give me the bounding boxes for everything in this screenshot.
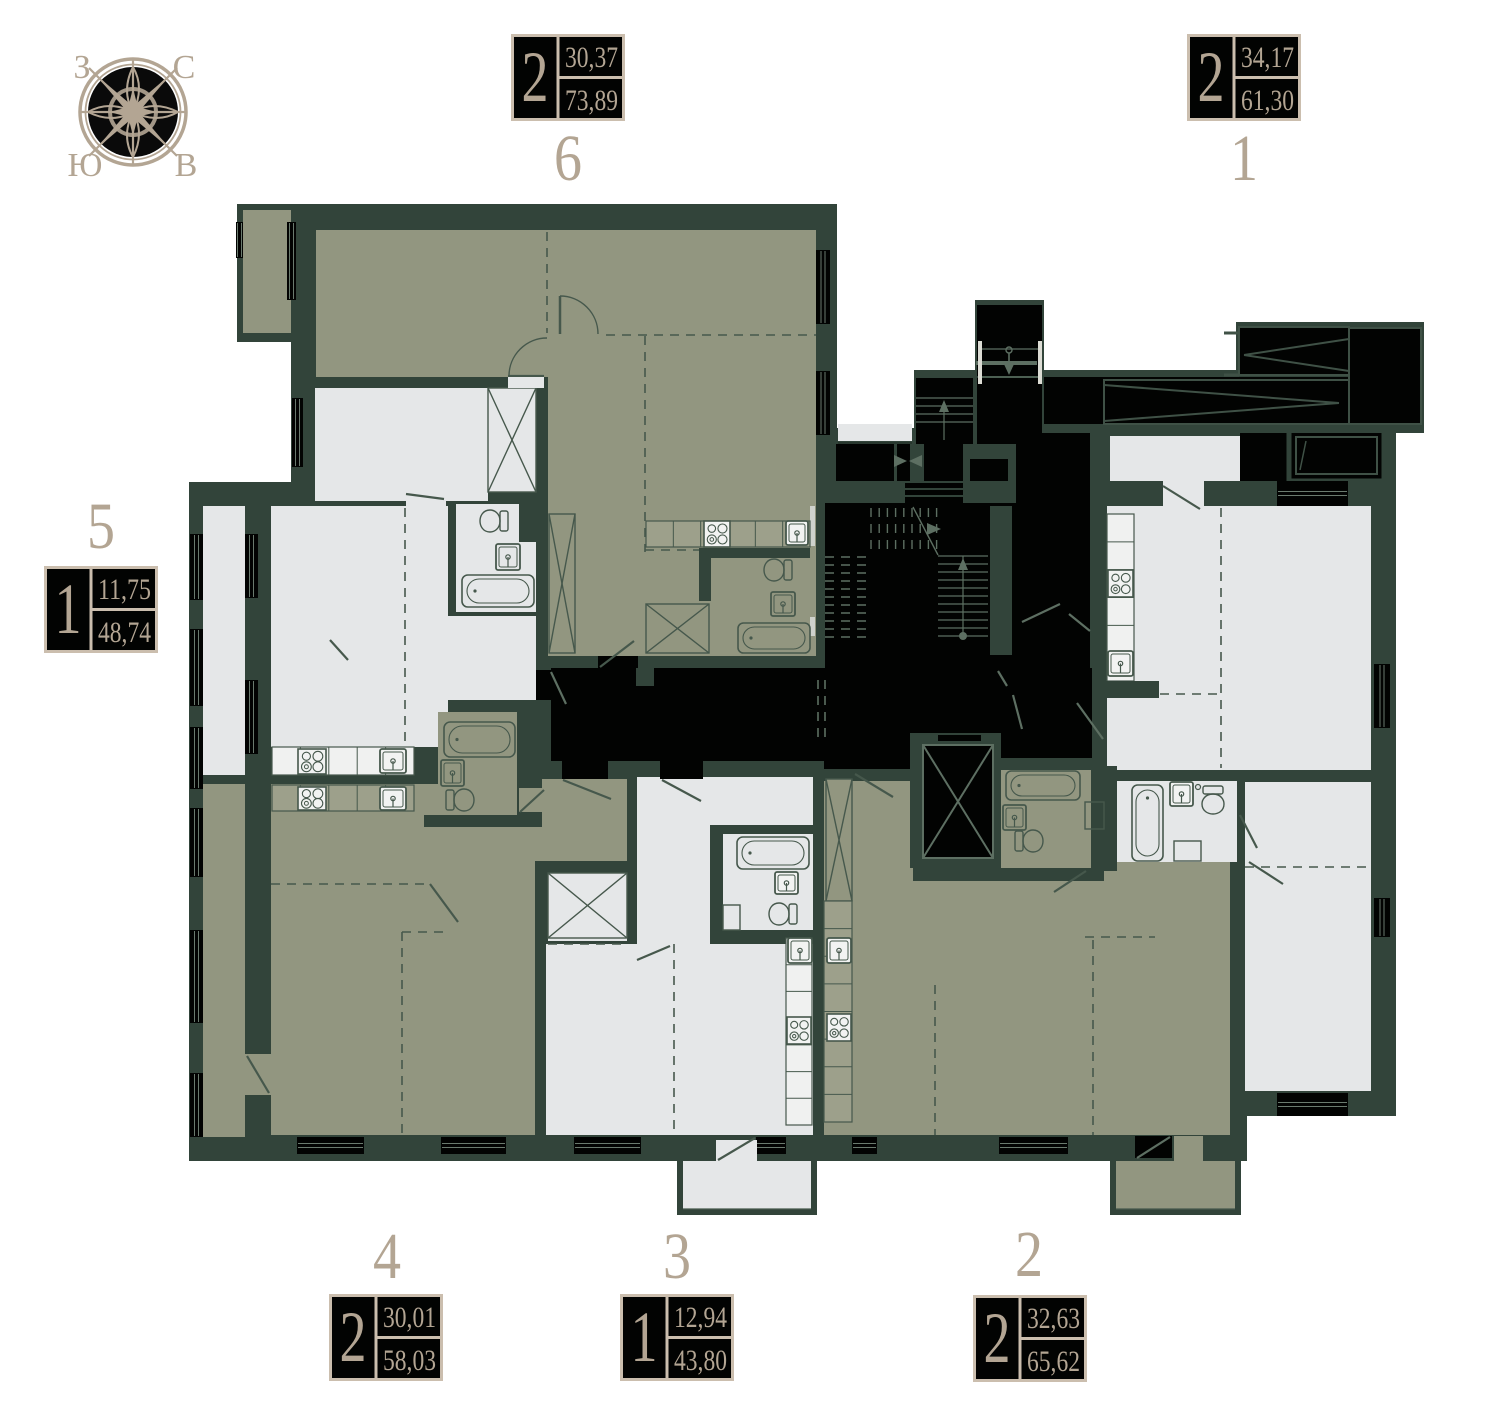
svg-text:1: 1 (631, 1297, 658, 1377)
svg-text:3: 3 (663, 1220, 691, 1293)
svg-text:30,01: 30,01 (383, 1301, 436, 1334)
svg-text:5: 5 (87, 490, 115, 563)
svg-text:С: С (173, 49, 196, 86)
svg-text:65,62: 65,62 (1027, 1345, 1080, 1378)
svg-text:В: В (175, 147, 198, 184)
svg-text:6: 6 (554, 122, 582, 195)
svg-text:43,80: 43,80 (674, 1344, 727, 1377)
svg-text:12,94: 12,94 (674, 1301, 727, 1334)
svg-text:11,75: 11,75 (98, 573, 151, 606)
svg-text:34,17: 34,17 (1241, 41, 1294, 74)
svg-text:58,03: 58,03 (383, 1344, 436, 1377)
svg-text:32,63: 32,63 (1027, 1302, 1080, 1335)
svg-text:2: 2 (1015, 1218, 1043, 1291)
svg-text:48,74: 48,74 (98, 616, 151, 649)
svg-text:61,30: 61,30 (1241, 84, 1294, 117)
svg-text:1: 1 (1230, 122, 1258, 195)
svg-text:2: 2 (1198, 37, 1225, 117)
svg-text:Ю: Ю (68, 147, 103, 184)
svg-text:З: З (73, 49, 90, 86)
svg-text:4: 4 (373, 1220, 401, 1293)
svg-text:73,89: 73,89 (565, 84, 618, 117)
svg-text:1: 1 (55, 569, 82, 649)
svg-text:30,37: 30,37 (565, 41, 618, 74)
svg-text:2: 2 (522, 37, 549, 117)
svg-text:2: 2 (984, 1298, 1011, 1378)
svg-text:2: 2 (340, 1297, 367, 1377)
